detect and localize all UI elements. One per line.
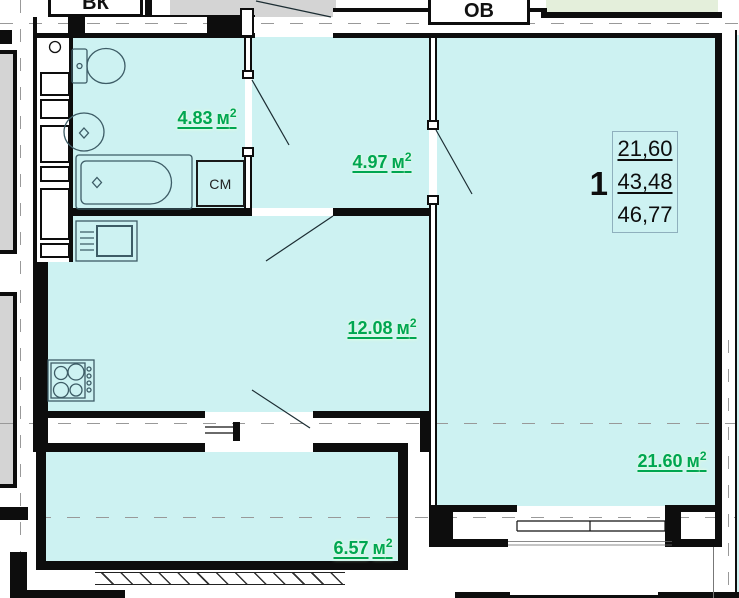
room-area-label-hallway: 4.97м2	[352, 151, 411, 171]
area-value: 4.83	[177, 108, 212, 128]
area-unit: м	[373, 538, 386, 558]
wall-segment	[546, 12, 722, 18]
grid-line	[713, 547, 714, 598]
wall-segment	[33, 262, 48, 452]
wall-segment	[665, 505, 681, 547]
area-unit: м	[687, 451, 700, 471]
balcony-wall	[36, 561, 408, 570]
vent-shaft	[40, 243, 70, 258]
neighbor-wall-line	[13, 296, 17, 484]
washing-machine-label: СМ	[209, 176, 232, 192]
shaft-label-vk: ВК	[82, 0, 109, 14]
balcony-wall	[36, 443, 205, 452]
shaft-box-vk: ВК	[48, 0, 143, 17]
area-sup: 2	[230, 106, 237, 120]
washing-machine-box: СМ	[196, 160, 245, 207]
window-sill-lines	[508, 542, 672, 546]
axis-line	[0, 23, 739, 24]
balcony-wall	[313, 443, 408, 452]
living-room-wall	[429, 38, 437, 121]
living-room-floor	[437, 37, 715, 506]
shaft-box-ov: ОВ	[428, 0, 530, 25]
floor-plan: ВК ОВ СМ 4.83м2 4.97м2 12.08м2 21.60м2 6…	[0, 0, 739, 598]
wall-segment	[33, 17, 37, 262]
living-area-value: 21,60	[613, 137, 677, 161]
area-value: 21.60	[637, 451, 682, 471]
neighbor-wall-line	[10, 590, 125, 598]
vent-shaft	[40, 99, 70, 119]
door-jamb	[427, 195, 439, 205]
vent-shaft	[40, 166, 70, 182]
neighbor-unit-area	[546, 0, 718, 12]
vent-shaft	[40, 188, 70, 240]
apartment-area-stamp: 21,60 43,48 46,77	[612, 131, 678, 233]
wall-segment	[73, 208, 252, 216]
neighbor-wall-line	[0, 484, 17, 488]
neighbor-wall-line	[735, 30, 737, 598]
area-sup: 2	[700, 449, 707, 463]
wall-segment	[68, 17, 85, 38]
area-unit: м	[217, 108, 230, 128]
wall-segment	[333, 208, 430, 216]
vent-shaft	[40, 125, 70, 163]
wall-segment	[145, 0, 152, 17]
neighbor-wall-line	[0, 507, 28, 520]
room-area-label-bathroom: 4.83м2	[177, 107, 236, 127]
axis-line	[728, 340, 729, 598]
apartment-area-value: 43,48	[613, 170, 677, 194]
room-area-label-kitchen: 12.08м2	[347, 317, 416, 337]
wall-segment	[715, 33, 722, 547]
neighbor-gray-strip	[0, 296, 13, 484]
area-sup: 2	[410, 316, 417, 330]
wall-segment	[681, 505, 722, 512]
total-area-value: 46,77	[613, 203, 677, 227]
axis-line	[0, 423, 735, 424]
axis-line	[38, 517, 735, 518]
area-value: 4.97	[352, 152, 387, 172]
area-sup: 2	[386, 536, 393, 550]
window-post	[233, 422, 240, 441]
wall-segment	[453, 539, 508, 547]
area-value: 6.57	[333, 538, 368, 558]
hallway-floor	[252, 37, 429, 208]
wall-segment	[313, 411, 437, 418]
vent-shaft	[40, 72, 70, 96]
kitchen-floor	[48, 216, 429, 412]
neighbor-window-recess	[510, 592, 658, 595]
wall-segment	[207, 17, 240, 38]
wall-segment	[541, 8, 547, 18]
bathroom-wall	[244, 38, 252, 72]
living-room-wall	[429, 204, 437, 505]
wall-segment	[33, 411, 205, 418]
wall-segment	[333, 33, 722, 38]
bathroom-wall	[244, 156, 252, 208]
wall-segment	[453, 505, 517, 512]
balcony-wall	[36, 443, 46, 570]
area-unit: м	[397, 318, 410, 338]
neighbor-wall-line	[0, 250, 17, 254]
neighbor-wall-line	[0, 30, 12, 44]
door-jamb	[242, 70, 254, 79]
area-value: 12.08	[347, 318, 392, 338]
area-sup: 2	[405, 150, 412, 164]
area-unit: м	[392, 152, 405, 172]
door-jamb	[240, 8, 254, 37]
neighbor-wall-line	[0, 50, 17, 54]
room-area-label-balcony: 6.57м2	[333, 537, 392, 557]
door-jamb	[427, 120, 439, 130]
balcony-railing-hatch	[95, 572, 345, 585]
apartment-rooms-count: 1	[580, 167, 608, 200]
neighbor-wall-line	[13, 54, 17, 250]
room-area-label-living-room: 21.60м2	[637, 450, 706, 470]
neighbor-gray-strip	[0, 54, 13, 250]
balcony-wall	[398, 443, 408, 570]
neighbor-wall-line	[0, 292, 17, 296]
door-jamb	[242, 147, 254, 157]
wall-segment	[429, 505, 453, 547]
shaft-label-ov: ОВ	[464, 1, 494, 22]
